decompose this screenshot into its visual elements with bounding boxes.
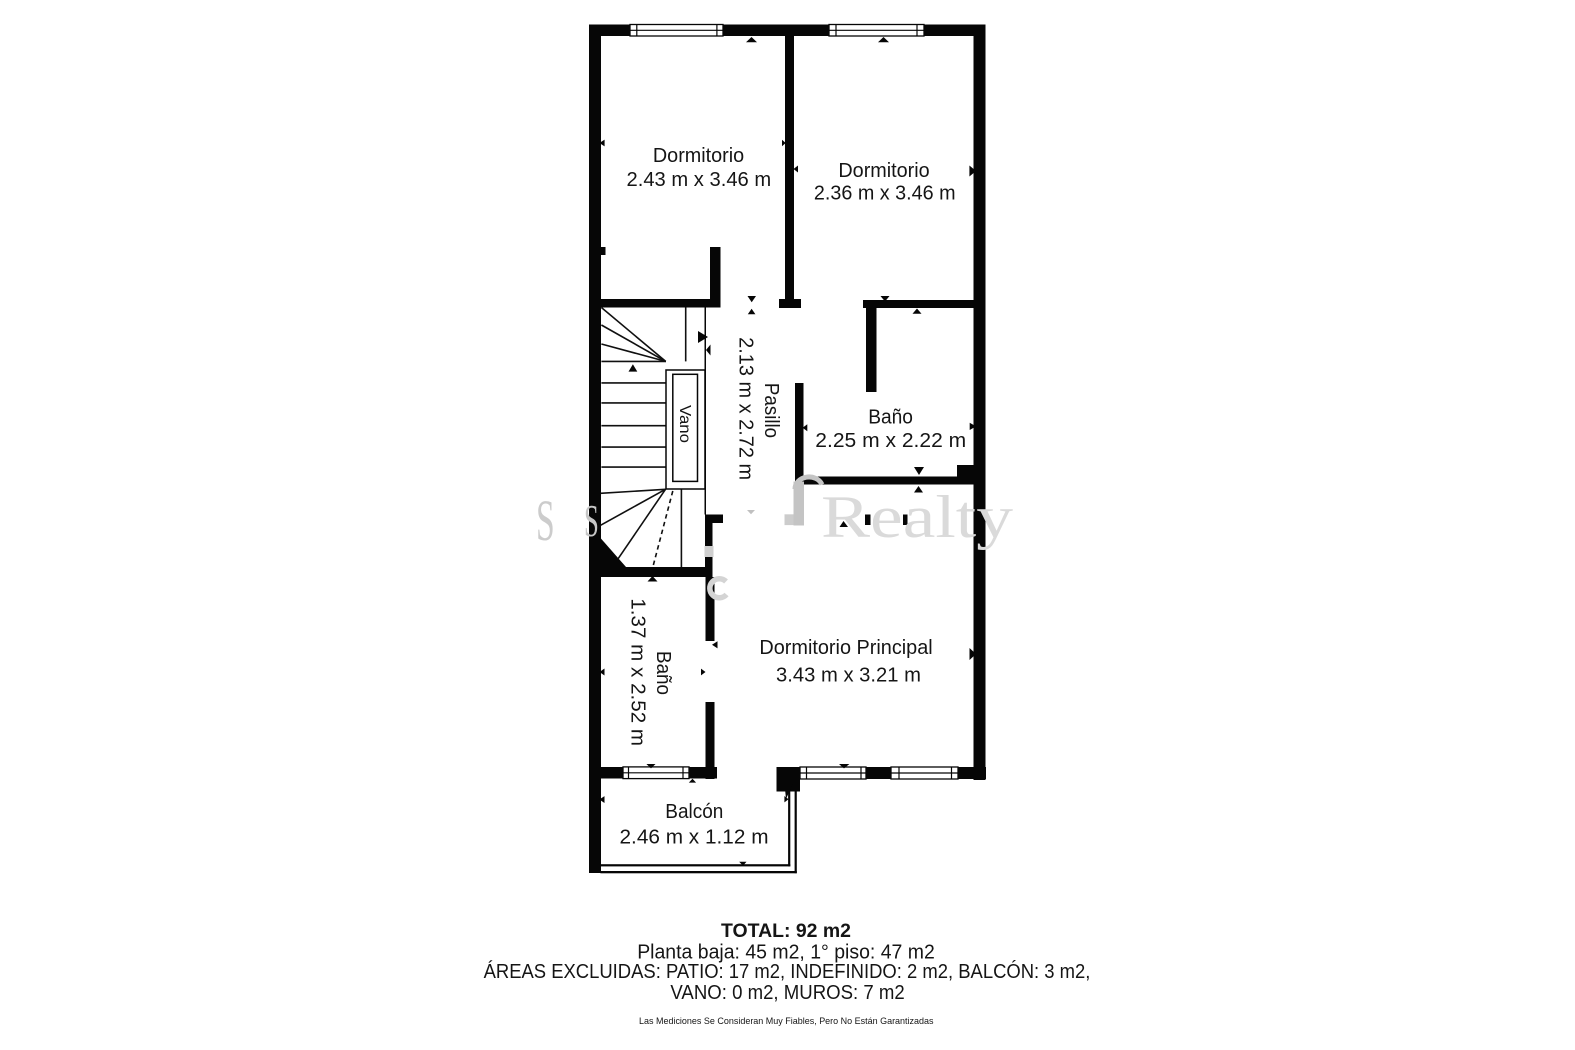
svg-text:Realty: Realty xyxy=(821,484,1013,550)
svg-text:ÁREAS EXCLUIDAS: PATIO: 17 m2,: ÁREAS EXCLUIDAS: PATIO: 17 m2, INDEFINID… xyxy=(484,960,1091,983)
svg-text:2.46 m x 1.12 m: 2.46 m x 1.12 m xyxy=(620,826,769,849)
svg-text:1.37 m x 2.52 m: 1.37 m x 2.52 m xyxy=(627,598,650,746)
svg-text:Dormitorio Principal: Dormitorio Principal xyxy=(759,636,932,659)
svg-text:Dormitorio: Dormitorio xyxy=(838,159,929,182)
svg-text:VANO: 0 m2, MUROS: 7 m2: VANO: 0 m2, MUROS: 7 m2 xyxy=(670,981,904,1004)
svg-text:Vano: Vano xyxy=(676,405,693,443)
svg-text:TOTAL: 92 m2: TOTAL: 92 m2 xyxy=(721,920,851,942)
svg-text:S: S xyxy=(536,490,555,554)
svg-text:S: S xyxy=(584,496,599,547)
svg-text:Las Mediciones Se Consideran M: Las Mediciones Se Consideran Muy Fiables… xyxy=(639,1016,934,1026)
svg-text:Baño: Baño xyxy=(652,651,675,695)
svg-text:2.36 m x 3.46 m: 2.36 m x 3.46 m xyxy=(814,182,956,205)
svg-text:2.13 m x 2.72 m: 2.13 m x 2.72 m xyxy=(735,337,758,480)
svg-text:3.43 m x 3.21 m: 3.43 m x 3.21 m xyxy=(776,663,921,686)
svg-text:Balcón: Balcón xyxy=(665,800,723,823)
svg-text:Pasillo: Pasillo xyxy=(760,383,783,438)
svg-text:2.25 m x 2.22 m: 2.25 m x 2.22 m xyxy=(815,429,966,452)
svg-text:2.43 m x 3.46 m: 2.43 m x 3.46 m xyxy=(627,168,772,191)
svg-text:Baño: Baño xyxy=(868,406,913,429)
svg-text:Dormitorio: Dormitorio xyxy=(653,144,744,167)
